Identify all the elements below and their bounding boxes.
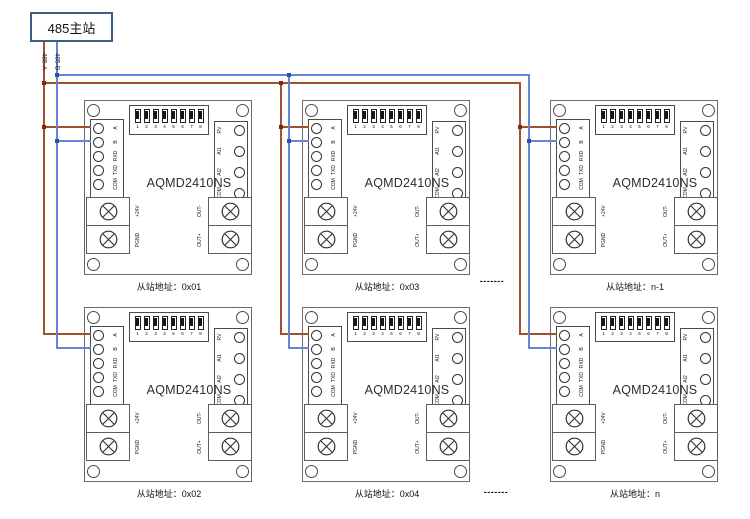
dip-switch-icon: [664, 109, 670, 123]
mounting-hole-icon: [702, 258, 715, 271]
pin-label-out-minus: OUT-: [414, 198, 422, 224]
dip-switch-icon: [416, 109, 422, 123]
pin-label-24v: +24V: [352, 198, 360, 224]
power-terminal-pgnd: [87, 226, 129, 254]
wire-485a-stub-b5: [280, 333, 309, 335]
output-terminal-minus: [675, 198, 717, 226]
pin-label-out-plus: OUT+: [414, 434, 422, 460]
dip-switches: [601, 109, 670, 123]
terminal-pin-b: [93, 137, 104, 148]
screw-terminal-icon: [317, 409, 336, 428]
dip-switch-icon: [198, 109, 204, 123]
power-terminal-block: [552, 197, 596, 254]
power-terminal-pgnd: [305, 433, 347, 461]
dip-number: 2: [362, 331, 368, 336]
terminal-pin-ai1: [452, 146, 463, 157]
terminal-pin-rv: [452, 125, 463, 136]
dip-switch-icon: [153, 109, 159, 123]
slave-address-label: 从站地址：n: [541, 487, 729, 500]
junction-dot: [42, 81, 46, 85]
wire-485a-stub-b1: [43, 126, 91, 128]
dip-switch-icon: [353, 109, 359, 123]
power-terminal-24v: [87, 405, 129, 433]
junction-dot: [279, 125, 283, 129]
dip-switch-icon: [189, 109, 195, 123]
rs485-master-label: 485主站: [48, 18, 96, 37]
dip-switch-icon: [171, 316, 177, 330]
screw-terminal-icon: [99, 437, 118, 456]
bus-label-485a: 485-A: [40, 45, 49, 79]
mounting-hole-icon: [305, 465, 318, 478]
wire-485a-stub-b2: [280, 126, 309, 128]
pin-label-24v: +24V: [600, 198, 608, 224]
slave-address-label: 从站地址：0x02: [75, 487, 263, 500]
pin-label-com: COM: [330, 171, 338, 197]
dip-switch-icon: [153, 316, 159, 330]
terminal-pin-a: [311, 123, 322, 134]
mounting-hole-icon: [553, 311, 566, 324]
screw-terminal-icon: [439, 230, 458, 249]
dip-number: 2: [144, 124, 150, 129]
wiring-diagram: 485主站 485-A 485-B 1 2 3 4: [0, 0, 750, 519]
dip-number: 8: [416, 331, 422, 336]
dip-switch-icon: [389, 316, 395, 330]
dip-number: 2: [610, 124, 616, 129]
terminal-pin-txd: [311, 372, 322, 383]
dip-number: 5: [637, 124, 643, 129]
dip-number: 3: [619, 124, 625, 129]
pin-label-out-plus: OUT+: [414, 227, 422, 253]
continuation-dashes-top: -------: [467, 276, 517, 286]
screw-terminal-icon: [687, 437, 706, 456]
dip-switch-icon: [135, 109, 141, 123]
dip-number: 6: [398, 331, 404, 336]
mounting-hole-icon: [87, 311, 100, 324]
dip-switch-icon: [619, 109, 625, 123]
terminal-pin-ai1: [700, 353, 711, 364]
pin-label-24v: +24V: [352, 405, 360, 431]
motor-output-block: [674, 197, 718, 254]
pin-label-out-plus: OUT+: [662, 227, 670, 253]
wire-485a-stub-b4: [43, 333, 91, 335]
screw-terminal-icon: [439, 409, 458, 428]
power-terminal-block: [552, 404, 596, 461]
dip-number: 1: [601, 331, 607, 336]
slave-address-label: 从站地址：n-1: [541, 280, 729, 293]
dip-number: 4: [628, 124, 634, 129]
mounting-hole-icon: [702, 311, 715, 324]
dip-number: 5: [171, 331, 177, 336]
output-terminal-minus: [209, 198, 251, 226]
output-terminal-plus: [427, 226, 469, 254]
motor-output-block: [208, 197, 252, 254]
terminal-pin-com: [559, 386, 570, 397]
junction-dot: [287, 139, 291, 143]
dip-number: 4: [380, 331, 386, 336]
screw-terminal-icon: [221, 230, 240, 249]
pin-label-com: COM: [112, 171, 120, 197]
mounting-hole-icon: [454, 465, 467, 478]
wire-485a-stub-b6: [519, 333, 557, 335]
wire-485b-stub-b4: [56, 347, 91, 349]
junction-dot: [279, 81, 283, 85]
dip-number: 6: [180, 124, 186, 129]
dip-number: 4: [162, 331, 168, 336]
dip-number: 5: [171, 124, 177, 129]
pin-label-out-minus: OUT-: [196, 198, 204, 224]
terminal-pin-ai1: [234, 353, 245, 364]
pin-label-com: COM: [330, 378, 338, 404]
terminal-pin-com: [93, 386, 104, 397]
terminal-pin-a: [311, 330, 322, 341]
power-terminal-24v: [553, 198, 595, 226]
screw-terminal-icon: [221, 437, 240, 456]
pin-label-com: COM: [578, 171, 586, 197]
board-model-title: AQMD2410NS: [351, 176, 463, 190]
terminal-pin-b: [311, 137, 322, 148]
dip-number: 8: [664, 331, 670, 336]
wire-485b-stub-b6: [528, 347, 557, 349]
rs485-master-box: 485主站: [30, 12, 113, 42]
wire-485b-drop-left: [56, 42, 58, 348]
power-terminal-pgnd: [553, 433, 595, 461]
wire-485b-drop-col3: [528, 74, 530, 348]
output-terminal-minus: [427, 198, 469, 226]
screw-terminal-icon: [565, 230, 584, 249]
wire-485a-stub-b3: [519, 126, 557, 128]
screw-terminal-icon: [565, 437, 584, 456]
terminal-pin-com: [93, 179, 104, 190]
dip-switch-icon: [398, 109, 404, 123]
power-terminal-pgnd: [305, 226, 347, 254]
mounting-hole-icon: [305, 311, 318, 324]
output-terminal-plus: [209, 226, 251, 254]
dip-number: 5: [389, 124, 395, 129]
slave-address-label: 从站地址：0x01: [75, 280, 263, 293]
output-terminal-plus: [675, 433, 717, 461]
junction-dot: [518, 125, 522, 129]
terminal-pin-a: [559, 123, 570, 134]
board-model-title: AQMD2410NS: [133, 383, 245, 397]
dip-number: 1: [135, 331, 141, 336]
wire-485a-drop-col2: [280, 82, 282, 335]
terminal-pin-b: [93, 344, 104, 355]
terminal-pin-b: [559, 344, 570, 355]
terminal-pin-txd: [311, 165, 322, 176]
output-terminal-minus: [427, 405, 469, 433]
wire-485b-drop-col2: [288, 74, 290, 348]
terminal-pin-com: [311, 179, 322, 190]
dip-number: 2: [362, 124, 368, 129]
pin-label-pgnd: PGND: [600, 434, 608, 460]
dip-switch-block: 1 2 3 4 5 6 7 8: [595, 312, 675, 342]
output-terminal-plus: [209, 433, 251, 461]
screw-terminal-icon: [687, 409, 706, 428]
screw-terminal-icon: [687, 202, 706, 221]
slave-address-label: 从站地址：0x04: [293, 487, 481, 500]
power-terminal-pgnd: [553, 226, 595, 254]
mounting-hole-icon: [236, 258, 249, 271]
terminal-pin-com: [311, 386, 322, 397]
dip-switch-numbers: 1 2 3 4 5 6 7 8: [353, 331, 422, 336]
wire-485b-stub-b1: [56, 140, 91, 142]
dip-number: 8: [198, 124, 204, 129]
power-terminal-24v: [305, 405, 347, 433]
dip-switch-icon: [144, 316, 150, 330]
dip-number: 7: [189, 331, 195, 336]
dip-switch-icon: [380, 316, 386, 330]
mounting-hole-icon: [305, 104, 318, 117]
mounting-hole-icon: [87, 258, 100, 271]
dip-switch-icon: [389, 109, 395, 123]
board-model-title: AQMD2410NS: [599, 383, 711, 397]
power-terminal-24v: [305, 198, 347, 226]
mounting-hole-icon: [236, 465, 249, 478]
junction-dot: [287, 73, 291, 77]
terminal-pin-rv: [700, 125, 711, 136]
board-model-title: AQMD2410NS: [599, 176, 711, 190]
dip-switch-icon: [189, 316, 195, 330]
terminal-pin-a: [93, 123, 104, 134]
terminal-pin-rxd: [559, 151, 570, 162]
dip-number: 4: [162, 124, 168, 129]
power-terminal-block: [304, 404, 348, 461]
junction-dot: [42, 125, 46, 129]
motor-output-block: [674, 404, 718, 461]
pin-label-pgnd: PGND: [134, 227, 142, 253]
dip-number: 3: [153, 124, 159, 129]
terminal-pin-txd: [559, 165, 570, 176]
dip-number: 8: [198, 331, 204, 336]
dip-switch-icon: [198, 316, 204, 330]
driver-board: 1 2 3 4 5 6 7 8 A B RXD TXD COM: [84, 307, 252, 482]
terminal-pin-rv: [452, 332, 463, 343]
dip-number: 8: [664, 124, 670, 129]
mounting-hole-icon: [454, 104, 467, 117]
dip-switches: [601, 316, 670, 330]
mounting-hole-icon: [553, 104, 566, 117]
screw-terminal-icon: [99, 409, 118, 428]
power-terminal-24v: [87, 198, 129, 226]
bus-label-485b: 485-B: [53, 45, 62, 79]
power-terminal-block: [304, 197, 348, 254]
dip-number: 7: [407, 124, 413, 129]
dip-switch-icon: [416, 316, 422, 330]
dip-number: 3: [619, 331, 625, 336]
dip-number: 3: [153, 331, 159, 336]
dip-number: 8: [416, 124, 422, 129]
dip-switch-icon: [171, 109, 177, 123]
terminal-pin-rxd: [311, 151, 322, 162]
terminal-pin-b: [559, 137, 570, 148]
dip-switch-icon: [628, 316, 634, 330]
dip-switch-icon: [180, 316, 186, 330]
dip-switches: [353, 109, 422, 123]
power-terminal-block: [86, 404, 130, 461]
wire-485b-stub-b3: [528, 140, 557, 142]
output-terminal-plus: [675, 226, 717, 254]
terminal-pin-a: [93, 330, 104, 341]
dip-switch-icon: [407, 316, 413, 330]
screw-terminal-icon: [565, 202, 584, 221]
wire-485b-bus: [56, 74, 530, 76]
dip-switch-icon: [637, 316, 643, 330]
dip-number: 5: [637, 331, 643, 336]
dip-switch-icon: [407, 109, 413, 123]
dip-number: 1: [601, 124, 607, 129]
driver-board: 1 2 3 4 5 6 7 8 A B RXD TXD COM: [84, 100, 252, 275]
dip-switch-icon: [610, 316, 616, 330]
dip-switch-icon: [371, 316, 377, 330]
terminal-pin-ai1: [234, 146, 245, 157]
mounting-hole-icon: [454, 311, 467, 324]
dip-switch-icon: [655, 109, 661, 123]
dip-switch-icon: [135, 316, 141, 330]
screw-terminal-icon: [99, 202, 118, 221]
pin-label-24v: +24V: [134, 405, 142, 431]
pin-label-com: COM: [578, 378, 586, 404]
dip-number: 2: [144, 331, 150, 336]
pin-label-out-plus: OUT+: [662, 434, 670, 460]
dip-number: 7: [407, 331, 413, 336]
dip-switches: [135, 316, 204, 330]
dip-switch-block: 1 2 3 4 5 6 7 8: [347, 105, 427, 135]
terminal-pin-rxd: [93, 151, 104, 162]
dip-switch-icon: [380, 109, 386, 123]
dip-switch-numbers: 1 2 3 4 5 6 7 8: [601, 331, 670, 336]
dip-switch-icon: [362, 316, 368, 330]
junction-dot: [527, 139, 531, 143]
dip-number: 6: [646, 331, 652, 336]
dip-switch-numbers: 1 2 3 4 5 6 7 8: [135, 124, 204, 129]
dip-switch-icon: [601, 109, 607, 123]
mounting-hole-icon: [702, 465, 715, 478]
junction-dot: [55, 139, 59, 143]
dip-switch-icon: [371, 109, 377, 123]
dip-number: 5: [389, 331, 395, 336]
dip-switch-icon: [610, 109, 616, 123]
dip-switch-icon: [353, 316, 359, 330]
dip-switches: [353, 316, 422, 330]
dip-switch-icon: [162, 109, 168, 123]
pin-label-24v: +24V: [134, 198, 142, 224]
mounting-hole-icon: [87, 465, 100, 478]
terminal-pin-rxd: [311, 358, 322, 369]
pin-label-pgnd: PGND: [600, 227, 608, 253]
mounting-hole-icon: [236, 311, 249, 324]
terminal-pin-b: [311, 344, 322, 355]
driver-board: 1 2 3 4 5 6 7 8 A B RXD TXD COM: [302, 307, 470, 482]
dip-switch-icon: [398, 316, 404, 330]
dip-switch-icon: [162, 316, 168, 330]
dip-switch-numbers: 1 2 3 4 5 6 7 8: [601, 124, 670, 129]
terminal-pin-a: [559, 330, 570, 341]
pin-label-24v: +24V: [600, 405, 608, 431]
dip-switch-icon: [628, 109, 634, 123]
dip-switch-icon: [619, 316, 625, 330]
pin-label-out-minus: OUT-: [196, 405, 204, 431]
screw-terminal-icon: [221, 202, 240, 221]
screw-terminal-icon: [317, 437, 336, 456]
output-terminal-plus: [427, 433, 469, 461]
motor-output-block: [208, 404, 252, 461]
driver-board: 1 2 3 4 5 6 7 8 A B RXD TXD COM: [302, 100, 470, 275]
terminal-pin-rxd: [93, 358, 104, 369]
mounting-hole-icon: [553, 258, 566, 271]
screw-terminal-icon: [439, 202, 458, 221]
terminal-pin-rv: [234, 332, 245, 343]
dip-number: 1: [353, 124, 359, 129]
terminal-pin-txd: [559, 372, 570, 383]
dip-switches: [135, 109, 204, 123]
dip-switch-icon: [664, 316, 670, 330]
power-terminal-24v: [553, 405, 595, 433]
screw-terminal-icon: [565, 409, 584, 428]
pin-label-out-minus: OUT-: [662, 198, 670, 224]
dip-switch-icon: [362, 109, 368, 123]
board-model-title: AQMD2410NS: [133, 176, 245, 190]
power-terminal-pgnd: [87, 433, 129, 461]
motor-output-block: [426, 404, 470, 461]
output-terminal-minus: [675, 405, 717, 433]
terminal-pin-rv: [234, 125, 245, 136]
dip-number: 6: [398, 124, 404, 129]
dip-number: 4: [628, 331, 634, 336]
motor-output-block: [426, 197, 470, 254]
screw-terminal-icon: [317, 230, 336, 249]
dip-number: 1: [353, 331, 359, 336]
dip-number: 7: [189, 124, 195, 129]
power-terminal-block: [86, 197, 130, 254]
screw-terminal-icon: [439, 437, 458, 456]
dip-number: 6: [646, 124, 652, 129]
wire-485b-stub-b2: [288, 140, 309, 142]
mounting-hole-icon: [305, 258, 318, 271]
pin-label-pgnd: PGND: [352, 434, 360, 460]
terminal-pin-com: [559, 179, 570, 190]
pin-label-pgnd: PGND: [134, 434, 142, 460]
screw-terminal-icon: [99, 230, 118, 249]
slave-address-label: 从站地址：0x03: [293, 280, 481, 293]
pin-label-pgnd: PGND: [352, 227, 360, 253]
pin-label-com: COM: [112, 378, 120, 404]
dip-number: 7: [655, 331, 661, 336]
dip-number: 2: [610, 331, 616, 336]
pin-label-out-plus: OUT+: [196, 227, 204, 253]
dip-switch-block: 1 2 3 4 5 6 7 8: [129, 105, 209, 135]
dip-switch-icon: [144, 109, 150, 123]
dip-switch-icon: [646, 316, 652, 330]
dip-switch-icon: [180, 109, 186, 123]
dip-switch-numbers: 1 2 3 4 5 6 7 8: [135, 331, 204, 336]
mounting-hole-icon: [87, 104, 100, 117]
terminal-pin-rxd: [559, 358, 570, 369]
wire-485b-stub-b5: [288, 347, 309, 349]
dip-number: 4: [380, 124, 386, 129]
mounting-hole-icon: [702, 104, 715, 117]
dip-switch-block: 1 2 3 4 5 6 7 8: [129, 312, 209, 342]
driver-board: 1 2 3 4 5 6 7 8 A B RXD TXD COM: [550, 100, 718, 275]
dip-number: 3: [371, 331, 377, 336]
board-model-title: AQMD2410NS: [351, 383, 463, 397]
wire-485a-drop-col3: [519, 82, 521, 335]
dip-switch-icon: [646, 109, 652, 123]
dip-switch-numbers: 1 2 3 4 5 6 7 8: [353, 124, 422, 129]
dip-switch-icon: [601, 316, 607, 330]
screw-terminal-icon: [317, 202, 336, 221]
pin-label-out-plus: OUT+: [196, 434, 204, 460]
pin-label-out-minus: OUT-: [662, 405, 670, 431]
